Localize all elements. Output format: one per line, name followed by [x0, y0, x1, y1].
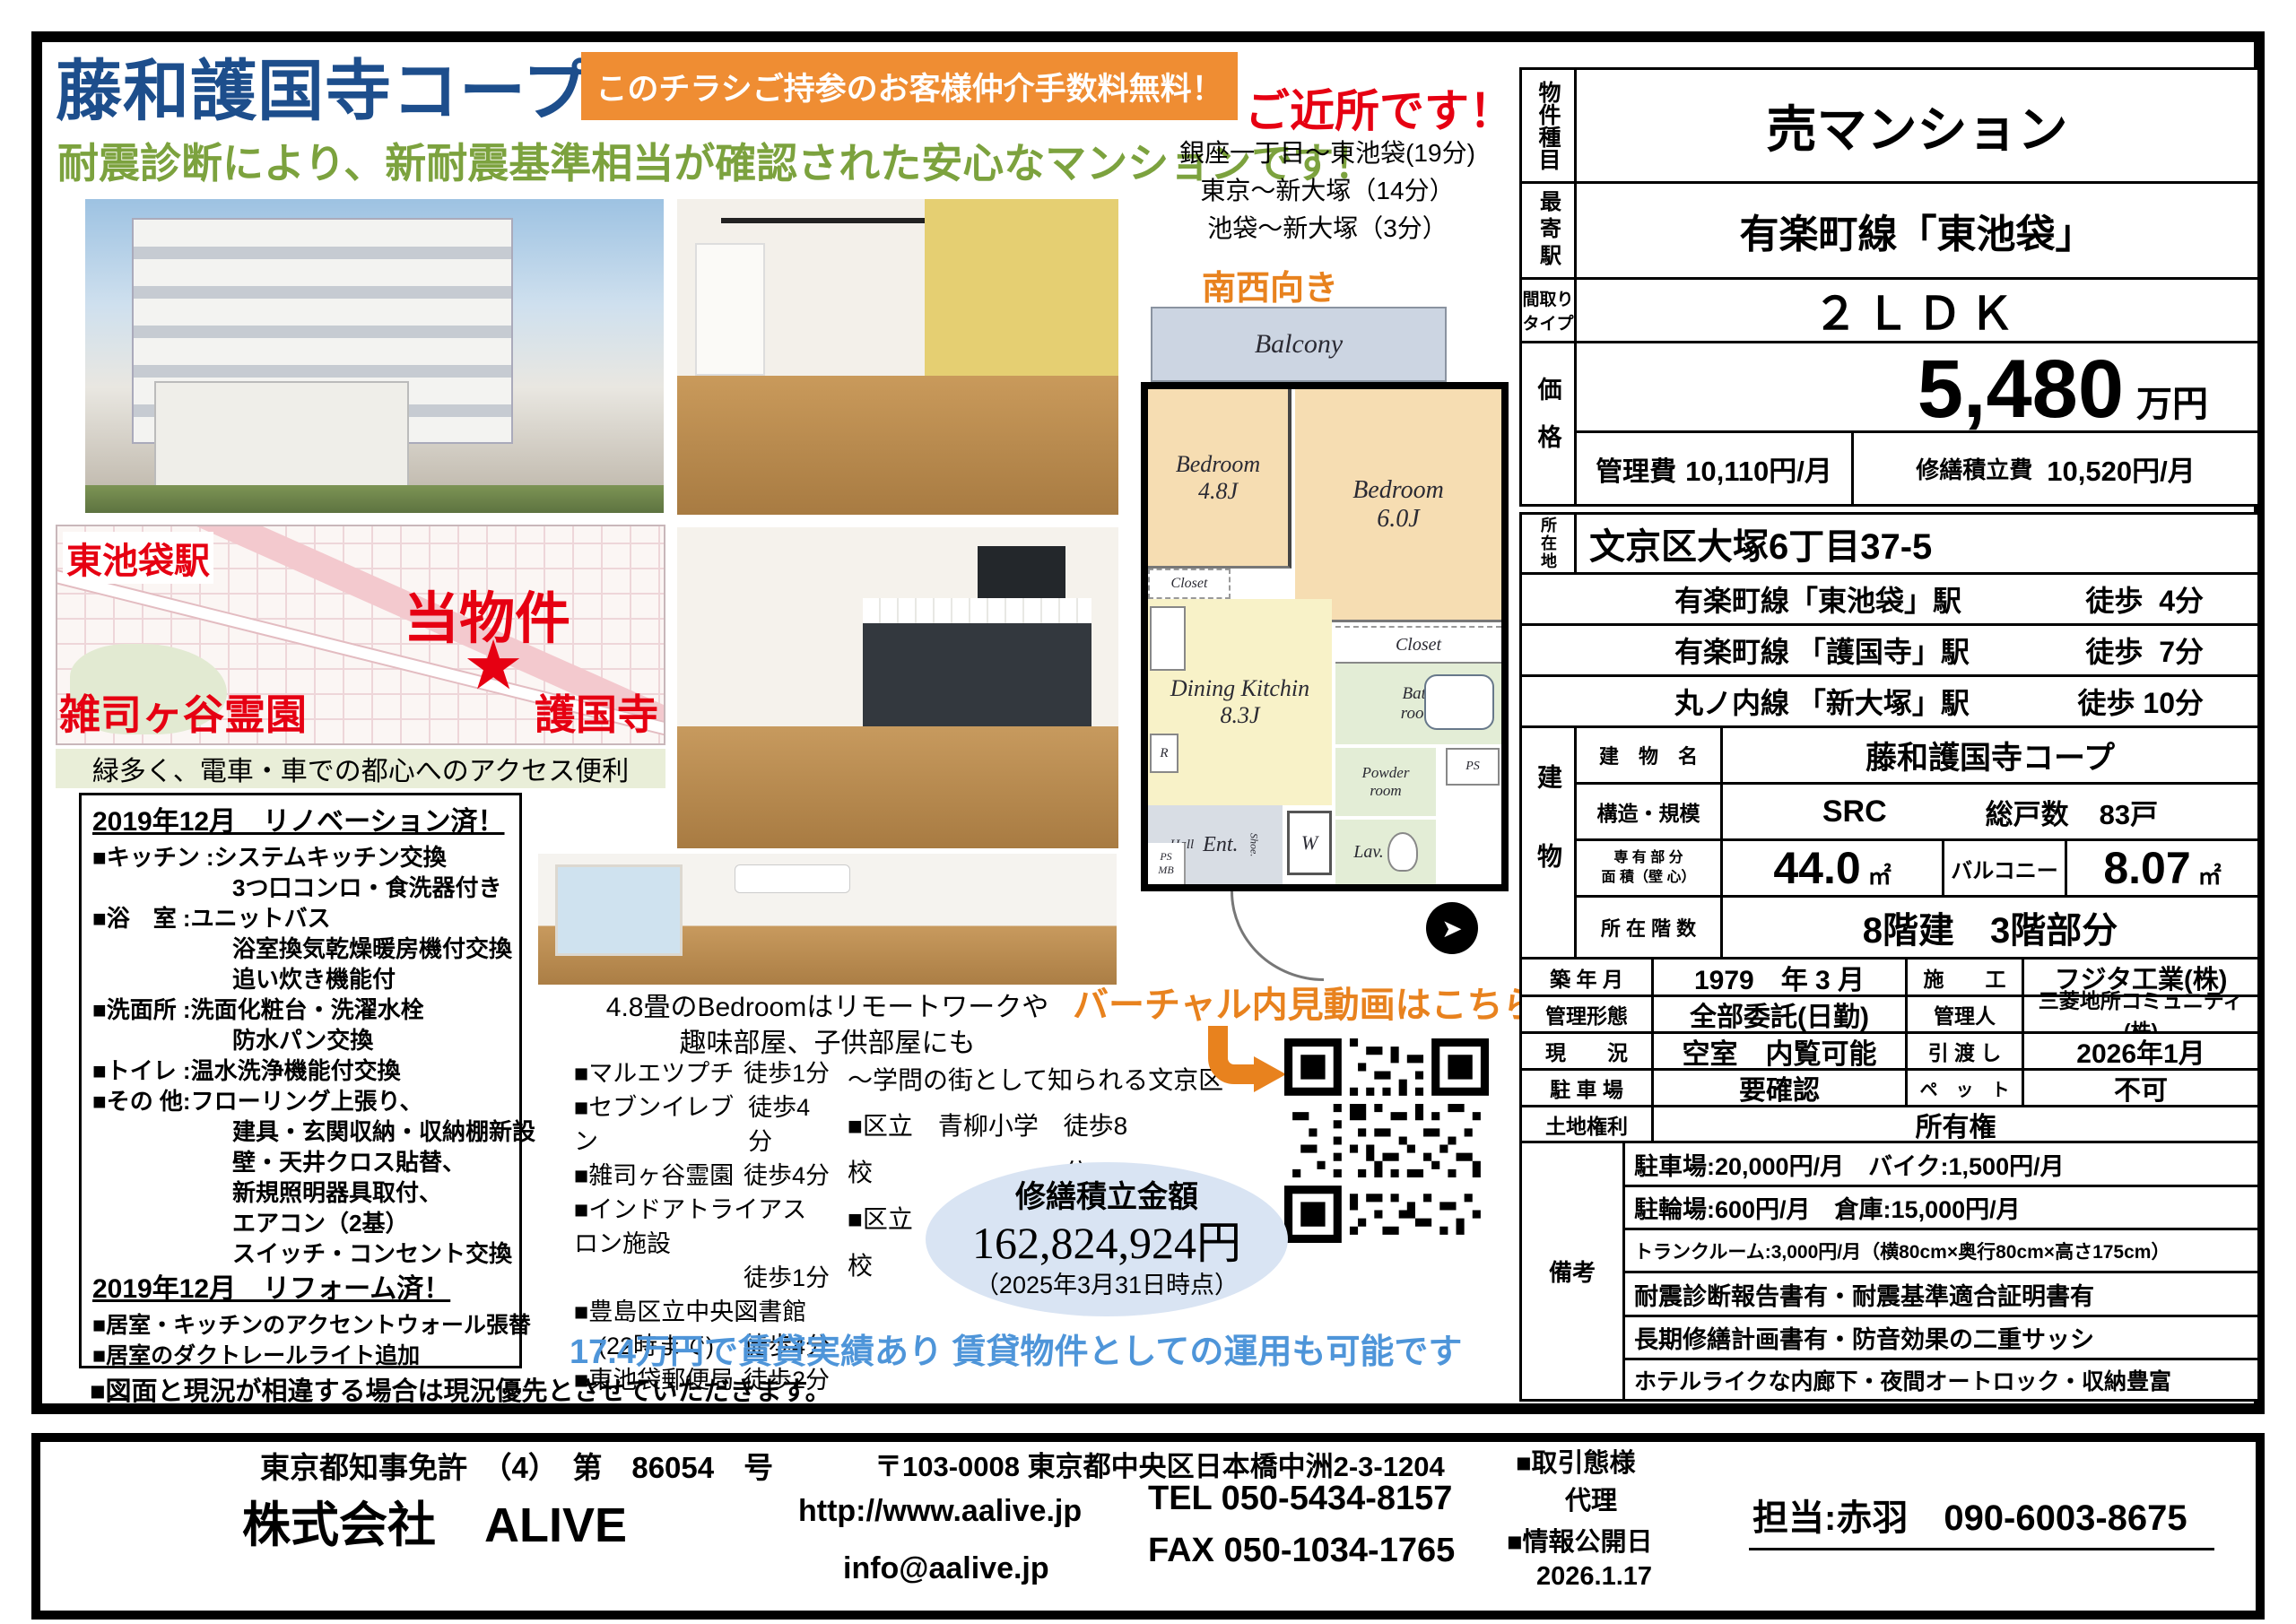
spec-mgmt-value: 全部委託(日勤)	[1651, 994, 1908, 1034]
fp-unit-outline: Bedroom 4.8J Bedroom 6.0J Closet Dining …	[1141, 382, 1509, 891]
photo-living-2	[538, 854, 1117, 985]
fp-powder-word-1: Powder	[1362, 764, 1410, 781]
spec-remarks-row: 耐震診断報告書有・耐震基準適合証明書有	[1622, 1271, 2260, 1317]
building-greenery-shape	[85, 485, 664, 514]
renovation-line: 3つ口コンロ・食洗器付き	[92, 873, 509, 903]
spec-station-value: 有楽町線「東池袋」	[1574, 181, 2260, 280]
fp-next-arrow-icon: ➤	[1426, 902, 1478, 954]
footer-deal-value: 代理	[1565, 1480, 1617, 1517]
map-star-icon: ★	[463, 632, 524, 700]
spec-parking-value: 要確認	[1651, 1068, 1908, 1107]
footer-contact: 担当:赤羽 090-6003-8675	[1749, 1489, 2214, 1550]
fp-fridge-label: R	[1160, 746, 1168, 761]
map-caption: 緑多く、電車・車での都心へのアクセス便利	[56, 749, 665, 788]
fp-dining-kitchen: Dining Kitchin 8.3J R	[1148, 599, 1332, 805]
fp-bedroom-2: Bedroom 6.0J	[1295, 389, 1501, 622]
spec-handover-label: 引 渡 し	[1905, 1031, 2024, 1071]
fp-lavatory: Lav.	[1335, 820, 1436, 884]
renovation-line: ■洗面所 :洗面化粧台・洗濯水栓	[92, 994, 509, 1025]
spec-station-row-name: 有楽町線「東池袋」駅	[1674, 578, 1961, 620]
amenity-name: ■インドアトライアスロン施設	[574, 1193, 830, 1261]
spec-total-units-label: 総戸数	[1986, 792, 2069, 832]
fp-lav-label: Lav.	[1353, 842, 1384, 863]
footer-tel: TEL 050-5434-8157	[1148, 1480, 1452, 1518]
spec-status-label: 現 況	[1519, 1031, 1654, 1071]
renovation-line: エアコン（2基）	[92, 1208, 509, 1238]
renovation-line: ■キッチン :システムキッチン交換	[92, 842, 509, 873]
renovation-line: ■浴 室 :ユニットバス	[92, 903, 509, 934]
nearby-access-line: 銀座一丁目～東池袋(19分)	[1139, 135, 1516, 172]
footer-company: 株式会社 ALIVE	[242, 1485, 627, 1556]
fp-bathtub-shape	[1424, 674, 1494, 730]
fp-ps: PS	[1446, 748, 1500, 786]
direction-label: 南西向き	[1202, 260, 1338, 309]
spec-bldg-name-label: 建 物 名	[1574, 725, 1723, 785]
fp-ent-label: Ent.	[1203, 833, 1238, 857]
schools-heading: ～学問の街として知られる文京区～	[848, 1058, 1248, 1103]
qr-code-svg	[1284, 1038, 1489, 1243]
fp-balcony: Balcony	[1151, 307, 1447, 382]
spec-remarks-label: 備考	[1519, 1141, 1625, 1402]
footer-deal-label: ■取引態様	[1516, 1442, 1636, 1480]
spec-repair-fee-value: 10,520円/月	[2047, 448, 2195, 489]
reform-line: ■居室のダクトレールライト追加	[92, 1341, 509, 1371]
fp-fridge: R	[1150, 734, 1178, 773]
spec-manager-label: 管理人	[1905, 994, 2024, 1034]
spec-total-units-value: 83戸	[2100, 792, 2158, 832]
amenity-walk: 徒歩4分	[748, 1090, 830, 1159]
spec-bldg-name-value: 藤和護国寺コープ	[1720, 725, 2260, 785]
spec-layout-label-1: 間取り	[1522, 286, 1573, 310]
footer-address: 〒103-0008 東京都中央区日本橋中洲2-3-1204	[874, 1444, 1445, 1484]
nearby-access-lines: 銀座一丁目～東池袋(19分) 東京～新大塚（14分） 池袋～新大塚（3分）	[1139, 135, 1516, 248]
fp-bedroom-2-size: 6.0J	[1377, 505, 1419, 534]
fp-closet-1-label: Closet	[1171, 576, 1208, 592]
fp-closet-2-label: Closet	[1396, 635, 1441, 656]
spec-type-label: 物件種目	[1519, 67, 1577, 184]
fp-next-arrow-glyph: ➤	[1441, 914, 1462, 943]
fp-bedroom-1-size: 4.8J	[1198, 478, 1238, 505]
spec-pet-value: 不可	[2022, 1068, 2260, 1107]
spec-mgmt-fee: 管理費 10,110円/月	[1574, 430, 1854, 507]
amenity-row: ■インドアトライアスロン施設	[574, 1193, 830, 1261]
renovation-line: ■トイレ :温水洗浄機能付交換	[92, 1055, 509, 1086]
renovation-line: 建具・玄関収納・収納棚新設	[92, 1116, 509, 1147]
fp-balcony-label: Balcony	[1255, 329, 1343, 360]
spec-manager-value: 三菱地所コミュニティ(株)	[2022, 994, 2260, 1034]
spec-addr-label: 所在地	[1519, 512, 1577, 575]
photo-building-exterior	[85, 199, 664, 513]
fp-shoe-label: Shoe.	[1248, 833, 1261, 856]
spec-addr-value: 文京区大塚6丁目37-5	[1574, 512, 2260, 575]
footer-publish-date: 2026.1.17	[1536, 1562, 1652, 1592]
reform-title: 2019年12月 リフォーム済！	[92, 1269, 509, 1310]
promo-banner: このチラシご持参のお客様仲介手数料無料！	[581, 52, 1238, 120]
spec-mgmt-fee-label: 管理費	[1596, 449, 1676, 489]
spec-pet-label: ペ ッ ト	[1905, 1068, 2024, 1107]
footer-license: 東京都知事免許 （4） 第 86054 号	[260, 1444, 773, 1487]
renovation-line: 防水パン交換	[92, 1025, 509, 1055]
spec-balcony-label: バルコニー	[1942, 838, 2067, 898]
light-track-shape	[721, 218, 924, 223]
floorplan: 南西向き Balcony Bedroom 4.8J Bedroom 6.0J C…	[1137, 260, 1514, 1004]
spec-built-label: 築 年 月	[1519, 957, 1654, 997]
spec-remarks-row: ホテルライクな内廊下・夜間オートロック・収納豊富	[1622, 1358, 2260, 1402]
kitchen-cabinet-shape	[863, 623, 1092, 726]
spec-price-unit: 万円	[2136, 375, 2208, 427]
spec-status-value: 空室 内覧可能	[1651, 1031, 1908, 1071]
spec-area-value: 44.0 ㎡	[1720, 838, 1944, 898]
accent-wall-shape	[925, 199, 1118, 376]
aircon-shape	[735, 864, 850, 893]
spec-station-row: 丸ノ内線 「新大塚」駅徒歩 10分	[1519, 674, 2260, 728]
spec-price-number: 5,480	[1918, 348, 2124, 430]
amenity-name: ■セブンイレブン	[574, 1090, 748, 1159]
spec-floor-label: 所 在 階 数	[1574, 895, 1723, 960]
spec-price-label: 価格	[1519, 341, 1577, 507]
spec-station-row-name: 丸ノ内線 「新大塚」駅	[1674, 681, 1970, 722]
spec-station-row-walk: 徒歩 10分	[2078, 681, 2205, 722]
fp-ps-mb-label: PS MB	[1152, 850, 1179, 877]
fp-wardrobe: W	[1287, 811, 1332, 875]
fp-powder-room: Powder room	[1335, 748, 1436, 816]
spec-land-label: 土地権利	[1519, 1105, 1654, 1143]
footer-fax: FAX 050-1034-1765	[1148, 1532, 1455, 1570]
spec-structure-value: SRC 総戸数 83戸	[1720, 782, 2260, 841]
neighborhood-map: 東池袋駅 当物件 ★ 雑司ヶ谷霊園 護国寺	[56, 525, 665, 745]
renovation-title: 2019年12月 リノベーション済！	[92, 803, 509, 842]
fp-bedroom-1: Bedroom 4.8J	[1148, 389, 1291, 569]
spec-remarks-row: 駐車場:20,000円/月 バイク:1,500円/月	[1622, 1141, 2260, 1187]
spec-repair-fee: 修繕積立費 10,520円/月	[1851, 430, 2260, 507]
nearby-access-line: 東京～新大塚（14分）	[1139, 172, 1516, 210]
fp-bathroom: Bath room	[1335, 664, 1501, 744]
fp-dk-size: 8.3J	[1220, 702, 1259, 729]
spec-layout-label-2: タイプ	[1522, 310, 1573, 334]
amenity-name: ■マルエツプチ	[574, 1056, 734, 1090]
spec-floor-value: 8階建 3階部分	[1720, 895, 2260, 960]
spec-area-label-2: 面 積（壁 心）	[1602, 868, 1696, 888]
renovation-box: 2019年12月 リノベーション済！ ■キッチン :システムキッチン交換 3つ口…	[79, 793, 522, 1368]
nearby-access-line: 池袋～新大塚（3分）	[1139, 210, 1516, 248]
curved-arrow-icon	[1204, 1024, 1289, 1105]
virtual-tour-label: バーチャル内見動画はこちら	[1073, 976, 1539, 1028]
photo-living-1	[677, 199, 1118, 515]
renovation-line: スイッチ・コンセント交換	[92, 1238, 509, 1269]
spec-building-group-label: 建物	[1519, 725, 1577, 960]
amenity-walk: 徒歩4分	[744, 1159, 830, 1193]
spec-balcony-unit: ㎡	[2198, 858, 2222, 891]
fp-closet-1: Closet	[1148, 569, 1231, 599]
renovation-line: 新規照明器具取付、	[92, 1177, 509, 1208]
spec-remarks-row: トランクルーム:3,000円/月（横80cm×奥行80cm×高さ175cm）	[1622, 1228, 2260, 1273]
amenity-row: ■マルエツプチ徒歩1分	[574, 1056, 830, 1090]
repair-fund-asof: （2025年3月31日時点）	[975, 1269, 1239, 1301]
qr-code	[1284, 1038, 1489, 1243]
building-entrance-shape	[154, 381, 409, 488]
fp-bedroom-1-label: Bedroom	[1176, 451, 1260, 478]
amenity-row: ■雑司ヶ谷霊園徒歩4分	[574, 1159, 830, 1193]
tile-wall-shape	[863, 598, 1092, 624]
spec-station-row-name: 有楽町線 「護国寺」駅	[1674, 630, 1970, 671]
fp-ps-label: PS	[1465, 760, 1480, 774]
fp-toilet-shape	[1387, 832, 1418, 872]
amenity-walk: 徒歩1分	[744, 1261, 830, 1295]
spec-land-value: 所有権	[1651, 1105, 2260, 1143]
spec-balcony-value: 8.07 ㎡	[2065, 838, 2260, 898]
window-shape	[555, 864, 683, 956]
spec-mgmt-fee-value: 10,110円/月	[1685, 448, 1832, 489]
renovation-line: 壁・天井クロス貼替、	[92, 1147, 509, 1177]
spec-station-row: 有楽町線 「護国寺」駅徒歩 7分	[1519, 623, 2260, 677]
fp-powder-word-2: room	[1370, 782, 1401, 799]
spec-remarks-row: 駐輪場:600円/月 倉庫:15,000円/月	[1622, 1185, 2260, 1230]
repair-fund-amount: 162,824,924円	[972, 1217, 1241, 1269]
spec-area-unit: ㎡	[1868, 858, 1892, 891]
spec-area-label: 専 有 部 分 面 積（壁 心）	[1574, 838, 1723, 898]
spec-layout-label: 間取り タイプ	[1519, 277, 1577, 343]
fp-dk-label: Dining Kitchin	[1170, 675, 1309, 702]
map-caption-text: 緑多く、電車・車での都心へのアクセス便利	[92, 749, 630, 788]
spec-station-row: 有楽町線「東池袋」駅徒歩 4分	[1519, 572, 2260, 626]
footer-frame: 東京都知事免許 （4） 第 86054 号 株式会社 ALIVE 〒103-00…	[31, 1433, 2265, 1620]
nearby-heading: ご近所です！	[1245, 75, 1514, 140]
photo-caption: 4.8畳のBedroomはリモートワークや 趣味部屋、子供部屋にも	[538, 990, 1117, 1062]
spec-area-number: 44.0	[1773, 845, 1860, 891]
amenity-name: ■雑司ヶ谷霊園	[574, 1159, 734, 1193]
spec-repair-fee-label: 修繕積立費	[1916, 452, 2032, 485]
page-title: 藤和護国寺コープ	[56, 38, 590, 134]
rental-note: 17.4万円で賃貸実績あり 賃貸物件としての運用も可能です	[570, 1324, 1462, 1373]
fp-stove-shape	[1150, 606, 1186, 671]
map-temple-label: 護国寺	[535, 682, 658, 742]
amenity-walk: 徒歩1分	[744, 1056, 830, 1090]
photo-kitchen	[677, 527, 1118, 848]
fp-closet-2: Closet	[1335, 626, 1501, 664]
fp-powder-label: Powder room	[1362, 764, 1410, 800]
renovation-line: ■その 他:フローリング上張り、	[92, 1086, 509, 1116]
spec-builder-label: 施 工	[1905, 957, 2024, 997]
spec-built-value: 1979 年 3 月	[1651, 957, 1908, 997]
fp-wardrobe-label: W	[1301, 831, 1318, 855]
repair-fund-badge: 修繕積立金額 162,824,924円 （2025年3月31日時点）	[926, 1162, 1288, 1316]
range-hood-shape	[978, 546, 1065, 597]
spec-station-row-walk: 徒歩 4分	[2085, 578, 2204, 620]
spec-type-value: 売マンション	[1574, 67, 2260, 184]
spec-handover-value: 2026年1月	[2022, 1031, 2260, 1071]
reform-line: ■居室・キッチンのアクセントウォール張替	[92, 1310, 509, 1341]
spec-mgmt-label: 管理形態	[1519, 994, 1654, 1034]
photo-caption-line: 4.8畳のBedroomはリモートワークや	[538, 990, 1117, 1026]
spec-remarks-row: 長期修繕計画書有・防音効果の二重サッシ	[1622, 1315, 2260, 1360]
amenity-row: 徒歩1分	[574, 1261, 830, 1295]
footer-url: http://www.aalive.jp	[798, 1494, 1082, 1529]
footer-email: info@aalive.jp	[843, 1551, 1049, 1586]
promo-banner-text: このチラシご持参のお客様仲介手数料無料！	[596, 64, 1222, 109]
renovation-line: 追い炊き機能付	[92, 964, 509, 994]
fp-bedroom-2-label: Bedroom	[1352, 476, 1444, 505]
map-cemetery-label: 雑司ヶ谷霊園	[59, 682, 307, 742]
map-station-label: 東池袋駅	[63, 532, 213, 584]
repair-fund-title: 修繕積立金額	[1015, 1177, 1198, 1217]
spec-area-label-1: 専 有 部 分	[1613, 848, 1683, 868]
spec-layout-value: ２ＬＤＫ	[1574, 277, 2260, 343]
footer-publish-label: ■情報公開日	[1507, 1521, 1653, 1559]
amenity-row: ■セブンイレブン徒歩4分	[574, 1090, 830, 1159]
spec-station-label: 最寄駅	[1519, 181, 1577, 280]
spec-structure-label: 構造・規模	[1574, 782, 1723, 841]
spec-table: 物件種目 売マンション 最寄駅 有楽町線「東池袋」 間取り タイプ ２ＬＤＫ 価…	[1519, 67, 2260, 1402]
spec-structure-text: SRC	[1822, 795, 1887, 829]
spec-balcony-number: 8.07	[2103, 845, 2190, 891]
door-shape	[695, 243, 766, 376]
fp-entry-door-arc	[1231, 891, 1324, 981]
spec-parking-label: 駐 車 場	[1519, 1068, 1654, 1107]
renovation-line: 浴室換気乾燥暖房機付交換	[92, 934, 509, 964]
spec-price-value: 5,480 万円	[1574, 341, 2260, 433]
fp-ps-mb: PS MB	[1148, 843, 1186, 884]
spec-station-row-walk: 徒歩 7分	[2085, 630, 2204, 671]
